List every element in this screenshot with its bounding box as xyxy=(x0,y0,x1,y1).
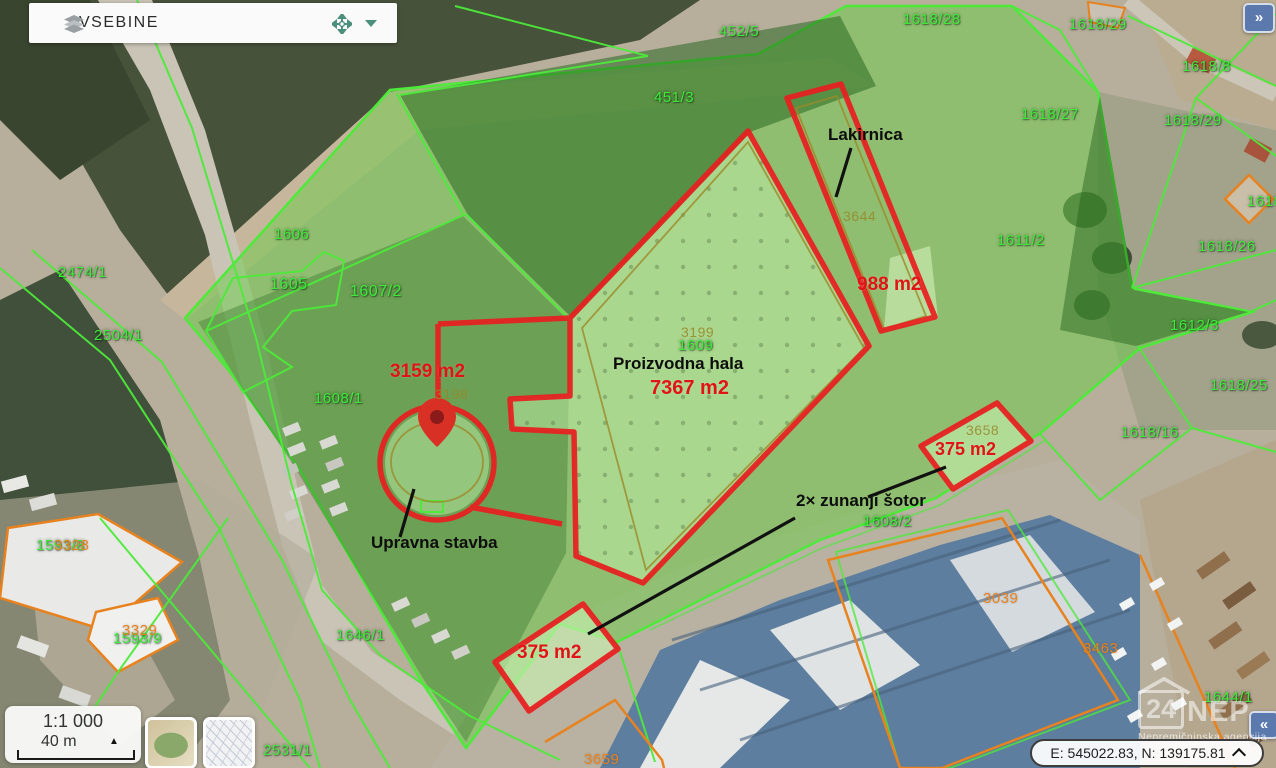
building-number-label: 3644 xyxy=(843,209,876,223)
map-app: 452/5451/31618/281618/291618/81618/29161… xyxy=(0,0,1276,768)
parcel-label: 1618/26 xyxy=(1198,239,1256,254)
parcel-label: 1618/16 xyxy=(1121,425,1179,440)
building-number-label: 3658 xyxy=(966,423,999,437)
orange-building-label: 3039 xyxy=(983,591,1018,606)
map-scale-ratio: 1:1 000 xyxy=(5,711,141,732)
expand-panel-button[interactable]: « xyxy=(1249,711,1276,739)
scale-bar xyxy=(17,750,135,760)
scale-bar-distance: 40 m xyxy=(41,733,77,751)
parcel-label: 1618 xyxy=(1247,194,1276,209)
scale-panel: 1:1 000 40 m ▲ xyxy=(5,706,141,763)
parcel-label: 1618/25 xyxy=(1210,378,1268,393)
parcel-label: 1644/1 xyxy=(1204,690,1253,705)
layers-panel[interactable]: VSEBINE xyxy=(29,3,397,43)
orange-building-label: 3463 xyxy=(1083,641,1118,656)
annotation-callout: Lakirnica xyxy=(828,126,903,143)
parcel-label: 1605 xyxy=(270,277,308,293)
parcel-label: 451/3 xyxy=(654,90,694,105)
parcel-label: 2474/1 xyxy=(58,265,107,280)
orange-building-label: 3328 xyxy=(54,538,89,553)
parcel-label: 1607/2 xyxy=(350,284,402,300)
parcel-label: 1618/8 xyxy=(1182,59,1231,74)
area-measurement: 375 m2 xyxy=(517,643,581,662)
topo-map-preview xyxy=(148,720,194,766)
annotation-callout: Upravna stavba xyxy=(371,534,498,551)
cursor-coordinates: E: 545022.83, N: 139175.81 xyxy=(1050,745,1225,761)
basemap-thumbnail-topo[interactable] xyxy=(145,717,197,768)
annotation-callout: Proizvodna hala xyxy=(613,355,743,372)
area-measurement: 3159 m2 xyxy=(390,362,465,381)
parcel-label: 1618/29 xyxy=(1164,113,1222,128)
pan-icon[interactable] xyxy=(332,14,352,34)
building-number-label: 3198 xyxy=(435,387,468,401)
parcel-label: 1608/2 xyxy=(863,514,912,529)
layers-panel-title: VSEBINE xyxy=(79,14,159,32)
parcel-label: 1618/29 xyxy=(1069,17,1127,32)
parcel-label: 2504/1 xyxy=(94,328,143,343)
collapse-panel-button[interactable]: » xyxy=(1243,3,1275,33)
chevron-down-icon[interactable] xyxy=(365,20,377,27)
chevron-up-icon[interactable] xyxy=(1232,748,1246,762)
parcel-label: 1618/27 xyxy=(1021,107,1079,122)
scale-expand-arrow[interactable]: ▲ xyxy=(109,736,119,747)
parcel-label: 1608/1 xyxy=(314,391,363,406)
parcel-label: 1606 xyxy=(274,227,309,242)
parcel-label: 1618/28 xyxy=(903,12,961,27)
orange-building-label: 3329 xyxy=(122,623,157,638)
parcel-label: 1611/2 xyxy=(997,233,1045,248)
parcel-label: 2531/1 xyxy=(263,743,312,758)
parcel-label: 1609 xyxy=(678,338,713,353)
coordinates-bar: E: 545022.83, N: 139175.81 xyxy=(1030,739,1264,767)
building-number-label: 3199 xyxy=(681,325,714,339)
area-measurement: 7367 m2 xyxy=(650,378,729,398)
orange-building-label: 3659 xyxy=(584,752,619,767)
area-measurement: 375 m2 xyxy=(935,440,996,458)
basemap-thumbnail-roads[interactable] xyxy=(203,717,255,768)
annotation-callout: 2× zunanji šotor xyxy=(796,492,926,509)
parcel-label: 1646/1 xyxy=(336,628,385,643)
parcel-label: 1612/3 xyxy=(1170,318,1219,333)
road-map-preview xyxy=(206,720,252,766)
area-measurement: 988 m2 xyxy=(857,275,921,294)
layers-icon xyxy=(63,15,85,33)
parcel-label: 452/5 xyxy=(719,24,759,39)
